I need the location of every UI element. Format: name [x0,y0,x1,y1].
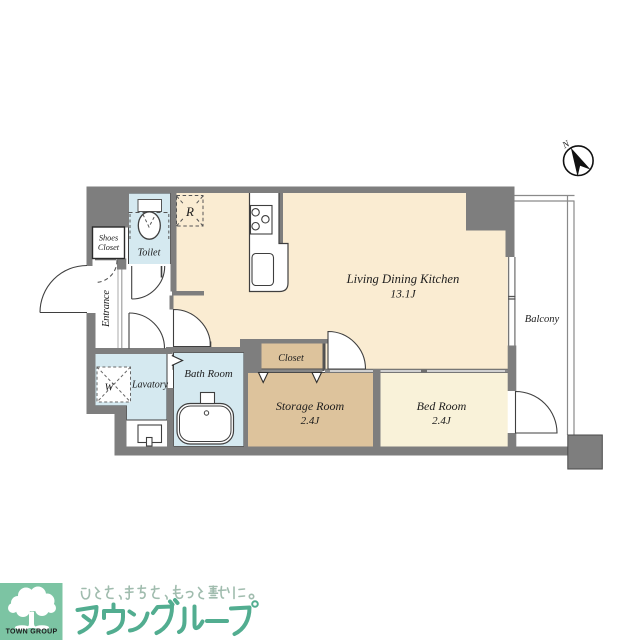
svg-text:2.4J: 2.4J [432,415,452,427]
svg-text:TOWN GROUP: TOWN GROUP [6,629,58,636]
svg-text:Closet: Closet [278,353,304,364]
svg-text:Lavatory: Lavatory [131,380,169,391]
svg-text:Toilet: Toilet [138,248,162,259]
svg-text:Balcony: Balcony [525,314,560,325]
svg-text:2.4J: 2.4J [301,415,321,427]
svg-text:Entrance: Entrance [101,290,112,328]
svg-text:Bed Room: Bed Room [417,399,467,413]
svg-text:W: W [105,383,115,394]
svg-text:Storage Room: Storage Room [276,399,345,413]
svg-text:Shoes: Shoes [99,234,118,243]
svg-text:R: R [185,204,194,219]
svg-text:Living Dining Kitchen: Living Dining Kitchen [346,272,460,286]
svg-text:Bath Room: Bath Room [184,368,232,380]
svg-text:Closet: Closet [98,243,120,252]
svg-text:13.1J: 13.1J [390,289,416,301]
